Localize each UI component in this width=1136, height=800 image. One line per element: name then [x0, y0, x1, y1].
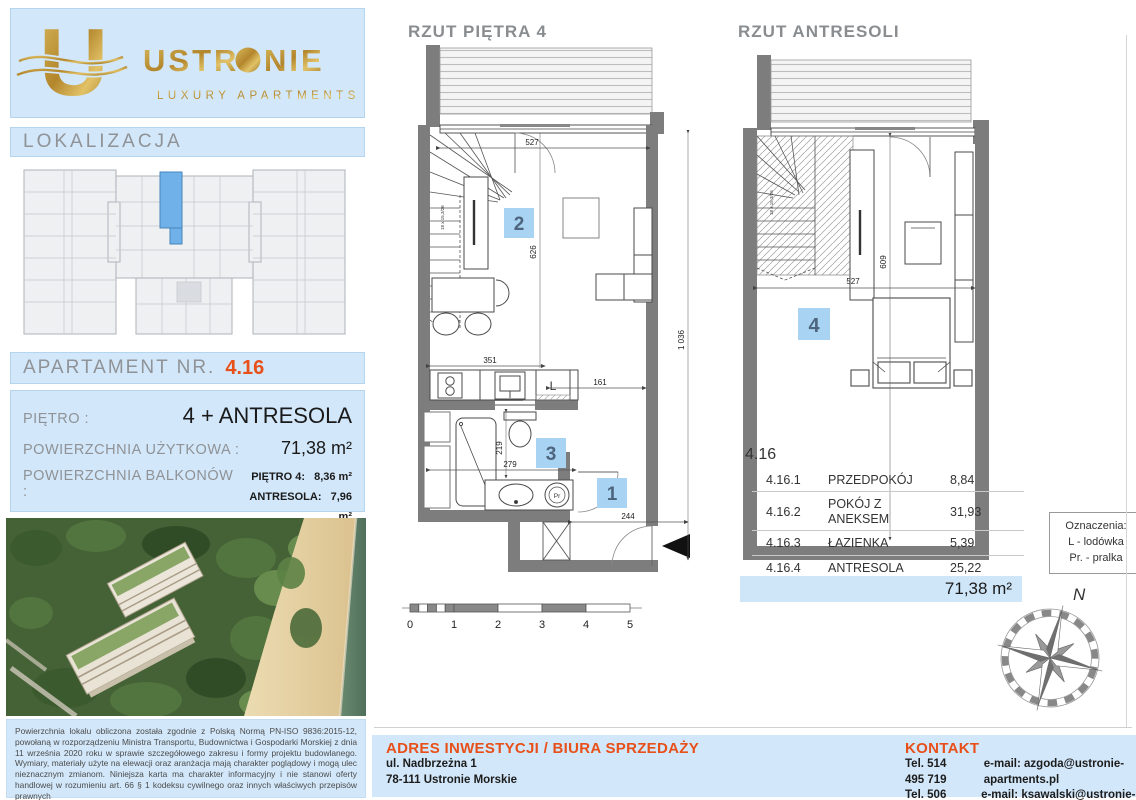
table-unit-label: 4.16	[745, 446, 776, 464]
scale-2: 2	[495, 619, 501, 631]
lokalizacja-label: LOKALIZACJA	[23, 131, 183, 153]
scale-4: 4	[583, 619, 589, 631]
washer-label: Pr	[554, 493, 561, 500]
row-id: 4.16.3	[766, 536, 828, 550]
row-name: ŁAZIENKA	[828, 536, 950, 550]
wardrobe	[464, 177, 488, 269]
brand-name-post: NIE	[264, 43, 325, 78]
mezz-sofa	[955, 152, 973, 342]
usable-area-label: POWIERZCHNIA UŻYTKOWA :	[23, 442, 239, 458]
dining-table	[432, 278, 509, 335]
dim-bath-height: 219	[495, 441, 504, 455]
row-name: POKÓJ Z ANEKSEM	[828, 497, 898, 526]
email-1: e-mail: azgoda@ustronie-apartments.pl	[984, 757, 1136, 788]
badge-room3: 3	[546, 444, 557, 465]
dim-kitchen: 351	[483, 356, 497, 365]
legend-fridge: L - lodówka	[1054, 535, 1136, 551]
balcony-deck	[440, 48, 652, 114]
balcony-wall	[426, 45, 440, 127]
building-overview-plan	[12, 162, 357, 344]
mezz-stair-note: 18 x 15,3/26	[769, 190, 774, 215]
legend-title: Oznaczenia:	[1054, 519, 1136, 535]
row-name: PRZEDPOKÓJ	[828, 473, 950, 487]
sofa	[596, 208, 652, 302]
room-badges: 2 3 1	[504, 208, 627, 508]
footer-contact-block: KONTAKT Tel. 514 495 719 e-mail: azgoda@…	[905, 740, 1136, 800]
dim-hall: 244	[621, 512, 635, 521]
lokalizacja-header: LOKALIZACJA	[10, 127, 365, 157]
row-name: ANTRESOLA	[828, 561, 950, 575]
contact-title: KONTAKT	[905, 740, 1136, 757]
address-line1: ul. Nadbrzeżna 1	[386, 757, 699, 773]
dim-fridge-gap: 161	[593, 378, 607, 387]
address-title: ADRES INWESTYCJI / BIURA SPRZEDAŻY	[386, 740, 699, 757]
fridge-label: L	[550, 379, 557, 393]
legend-box: Oznaczenia: L - lodówka Pr. - pralka	[1049, 512, 1136, 574]
floor4-plan-title: RZUT PIĘTRA 4	[408, 22, 547, 42]
scale-1: 1	[451, 619, 457, 631]
row-id: 4.16.2	[766, 505, 828, 519]
apartment-header: APARTAMENT NR. 4.16	[10, 352, 365, 384]
legend-washer: Pr. - pralka	[1054, 551, 1136, 567]
balcony-mezz-label: ANTRESOLA:	[249, 491, 321, 503]
compass-rose: N	[995, 584, 1110, 716]
dim-unit-height: 1 036	[677, 329, 686, 350]
badge-room1: 1	[607, 484, 618, 505]
row-area: 31,93	[950, 505, 1022, 519]
badge-room2: 2	[514, 214, 525, 235]
scale-0: 0	[407, 619, 413, 631]
apartment-label: APARTAMENT NR.	[23, 357, 215, 379]
table-row: 4.16.2 POKÓJ Z ANEKSEM 31,93	[752, 491, 1024, 530]
page-edge-rule	[1126, 35, 1127, 727]
floor4-plan: 18 x 15,3/26 L	[400, 40, 700, 640]
brand-tagline: LUXURY APARTMENTS	[157, 90, 360, 102]
room-table: 4.16.1 PRZEDPOKÓJ 8,84 4.16.2 POKÓJ Z AN…	[752, 468, 1024, 579]
table-row: 4.16.1 PRZEDPOKÓJ 8,84	[752, 468, 1024, 491]
shaft	[543, 522, 570, 560]
floor-label: PIĘTRO :	[23, 411, 89, 427]
footer-divider	[374, 727, 1132, 728]
brand-name-pre: USTR	[143, 43, 239, 78]
balcony-floor-label: PIĘTRO 4:	[251, 471, 305, 483]
scale-bar: 0 1 2 3 4 5	[402, 604, 642, 631]
mezz-balcony-deck	[771, 60, 971, 122]
badge-room4: 4	[808, 315, 820, 337]
apartment-details-panel: PIĘTRO : 4 + ANTRESOLA POWIERZCHNIA UŻYT…	[10, 390, 365, 512]
entrance-arrow-icon	[662, 534, 690, 558]
phone-1: Tel. 514 495 719	[905, 757, 966, 788]
aerial-photo	[6, 518, 366, 716]
apartment-number: 4.16	[225, 357, 264, 380]
brand-logo: U USTR NIE LUXURY APARTMENTS	[11, 9, 364, 117]
stair-note: 18 x 15,3/26	[440, 205, 445, 230]
bottom-wall	[508, 560, 658, 572]
row-id: 4.16.1	[766, 473, 828, 487]
bed	[851, 298, 972, 388]
row-area: 25,22	[950, 561, 1022, 575]
total-area-bar: 71,38 m²	[740, 576, 1022, 602]
footer: ADRES INWESTYCJI / BIURA SPRZEDAŻY ul. N…	[372, 735, 1136, 797]
mezz-dim-width: 527	[846, 277, 860, 286]
legal-note: Powierzchnia lokalu obliczona została zg…	[6, 719, 366, 798]
scale-3: 3	[539, 619, 545, 631]
dim-room-height: 626	[529, 245, 538, 259]
floor-value: 4 + ANTRESOLA	[183, 403, 352, 429]
usable-area-value: 71,38 m²	[281, 438, 352, 459]
logo-panel: U USTR NIE LUXURY APARTMENTS	[10, 8, 365, 118]
email-2: e-mail: ksawalski@ustronie-apartments.pl	[981, 788, 1136, 800]
row-area: 5,39	[950, 536, 1022, 550]
dim-bath-width: 279	[503, 460, 517, 469]
dim-top: 527	[525, 138, 539, 147]
address-line2: 78-111 Ustronie Morskie	[386, 773, 699, 789]
mezz-dim-height: 609	[879, 255, 888, 269]
brand-o-disc-icon	[236, 48, 261, 73]
row-id: 4.16.4	[766, 561, 828, 575]
table-row: 4.16.3 ŁAZIENKA 5,39	[752, 530, 1024, 554]
row-area: 8,84	[950, 473, 1022, 487]
mezzanine-plan-title: RZUT ANTRESOLI	[738, 22, 900, 42]
scale-5: 5	[627, 619, 633, 631]
phone-2: Tel. 506 128 263	[905, 788, 963, 800]
balcony-floor-value: 8,36 m²	[314, 471, 352, 483]
footer-address-block: ADRES INWESTYCJI / BIURA SPRZEDAŻY ul. N…	[386, 740, 699, 788]
right-wall	[646, 125, 658, 526]
compass-north-label: N	[1073, 585, 1086, 604]
